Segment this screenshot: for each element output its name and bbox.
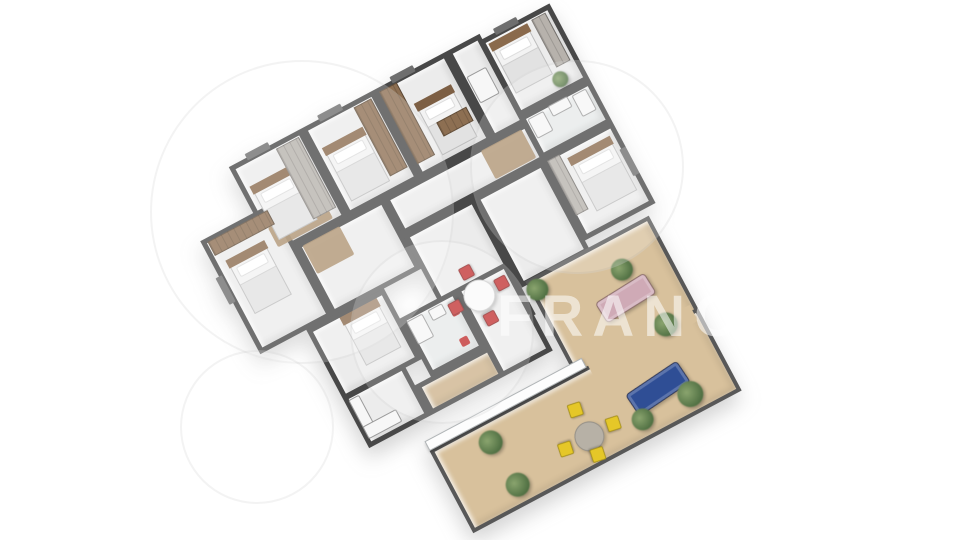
floor-plan-scene: FRANC	[0, 0, 960, 540]
plan	[165, 0, 814, 540]
